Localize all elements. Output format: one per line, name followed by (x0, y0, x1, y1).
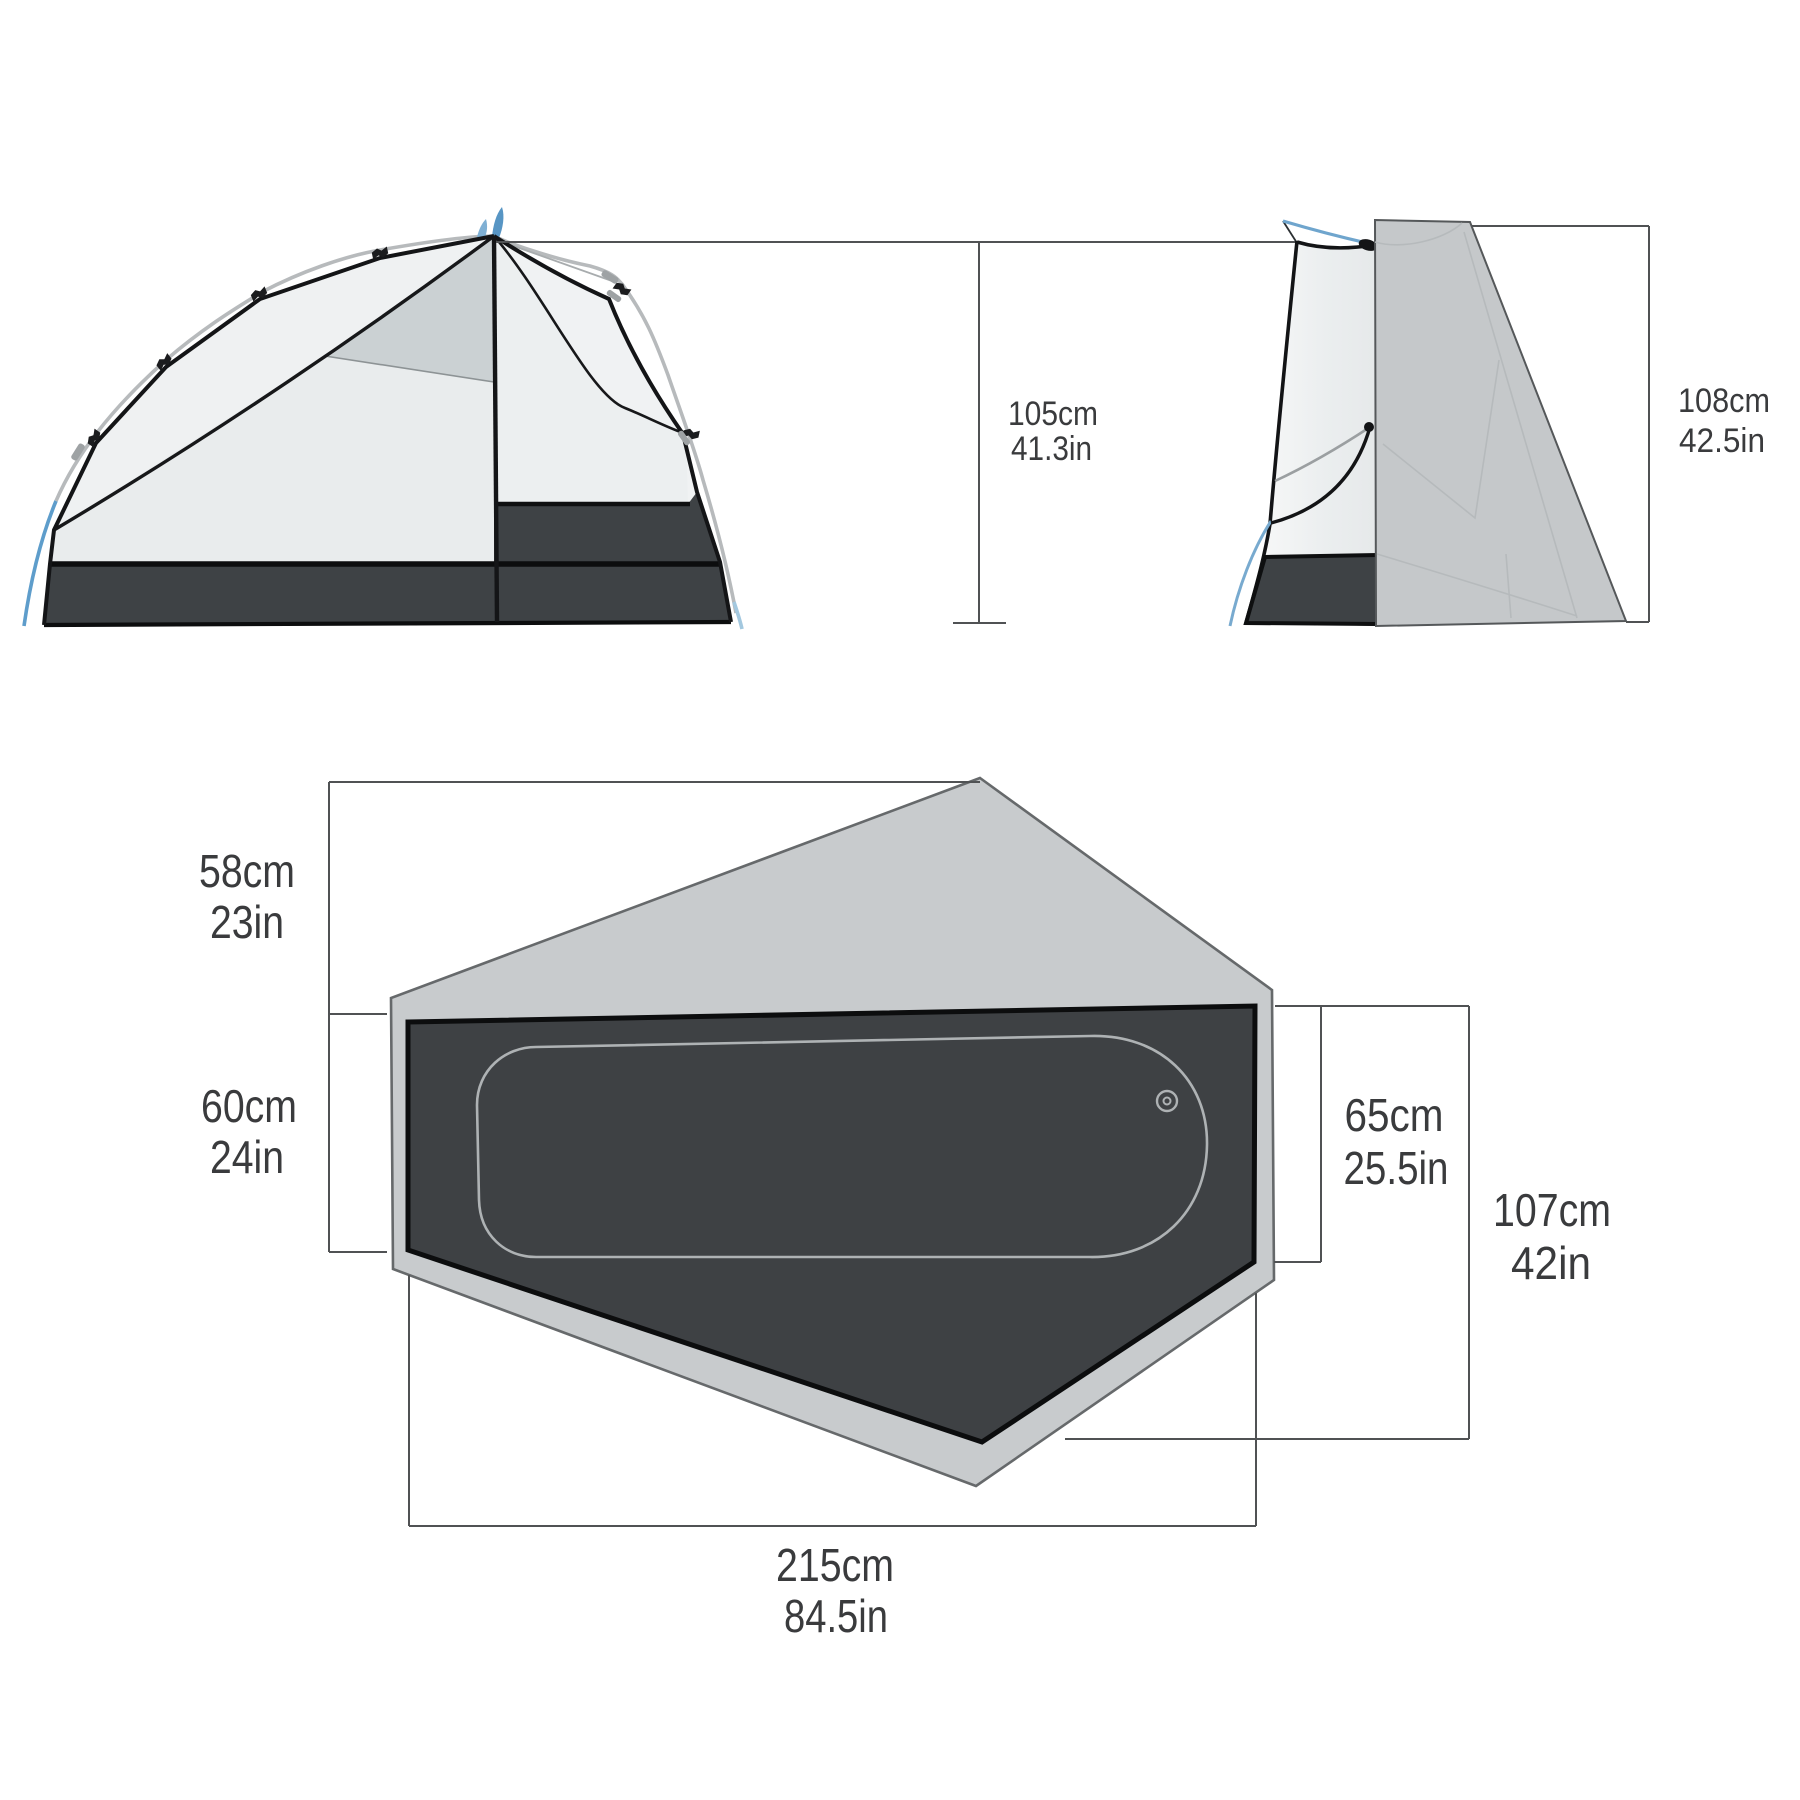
svg-text:58cm: 58cm (199, 845, 295, 897)
svg-text:25.5in: 25.5in (1344, 1142, 1449, 1194)
svg-text:60cm: 60cm (201, 1080, 297, 1132)
svg-text:41.3in: 41.3in (1011, 430, 1092, 468)
svg-text:215cm: 215cm (776, 1539, 894, 1591)
svg-text:24in: 24in (210, 1131, 284, 1183)
svg-text:42.5in: 42.5in (1679, 422, 1765, 460)
svg-text:42in: 42in (1511, 1237, 1591, 1289)
svg-text:105cm: 105cm (1008, 395, 1098, 433)
svg-text:108cm: 108cm (1678, 382, 1770, 420)
svg-text:65cm: 65cm (1345, 1089, 1444, 1141)
svg-text:84.5in: 84.5in (784, 1590, 888, 1642)
svg-text:107cm: 107cm (1493, 1184, 1611, 1236)
svg-text:23in: 23in (210, 896, 284, 948)
